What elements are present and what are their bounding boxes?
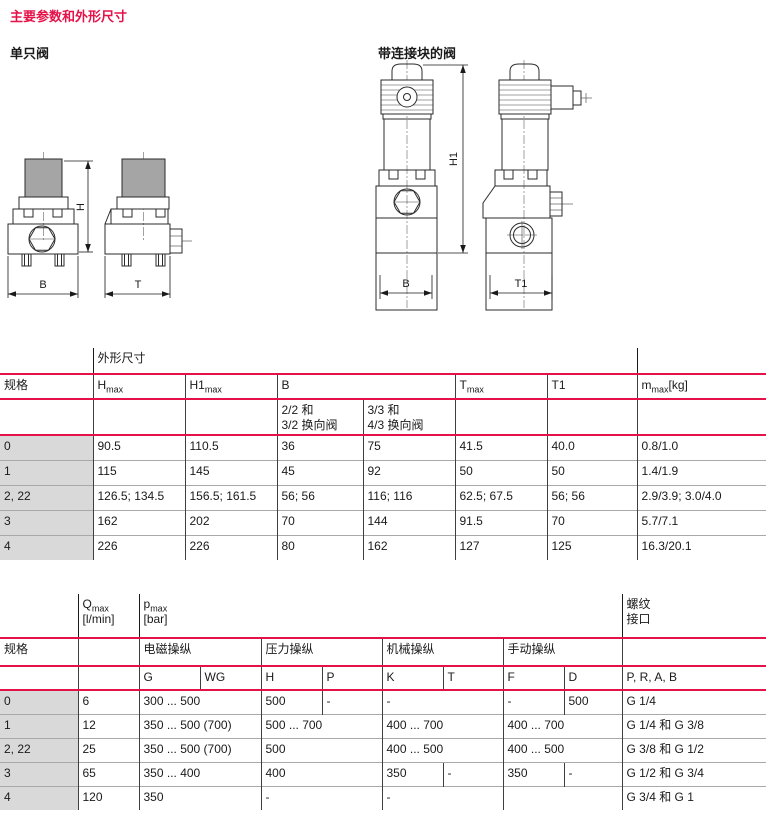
table-cell: 40.0 bbox=[547, 435, 637, 460]
table-cell: 226 bbox=[93, 535, 185, 560]
table-cell bbox=[0, 399, 93, 435]
table-cell: 65 bbox=[78, 762, 139, 786]
table-cell: 400 ... 700 bbox=[503, 714, 622, 738]
table-cell: 56; 56 bbox=[277, 485, 363, 510]
table-cell bbox=[78, 666, 139, 690]
table-cell: 500 ... 700 bbox=[261, 714, 382, 738]
table-cell: - bbox=[261, 786, 382, 810]
table-cell: 400 ... 500 bbox=[382, 738, 503, 762]
table-cell bbox=[622, 638, 766, 666]
header-spec: 规格 bbox=[0, 374, 93, 399]
header-hmax: Hmax bbox=[93, 374, 185, 399]
table-cell: - bbox=[382, 690, 503, 714]
table-cell: 350 ... 500 (700) bbox=[139, 738, 261, 762]
header-pressure: 压力操纵 bbox=[261, 638, 382, 666]
table-cell: 500 bbox=[564, 690, 622, 714]
table-cell: - bbox=[322, 690, 382, 714]
table-row: G WG H P K T F D P, R, A, B bbox=[0, 666, 766, 690]
table-cell: 125 bbox=[547, 535, 637, 560]
table-cell: 145 bbox=[185, 460, 277, 485]
header-pmax: pmax [bar] bbox=[139, 594, 622, 638]
table-cell: 156.5; 161.5 bbox=[185, 485, 277, 510]
table-cell: 202 bbox=[185, 510, 277, 535]
table-cell: 25 bbox=[78, 738, 139, 762]
table-cell: 400 ... 500 bbox=[503, 738, 622, 762]
table-row: 规格 Hmax H1max B Tmax T1 mmax[kg] bbox=[0, 374, 766, 399]
table-cell bbox=[503, 786, 622, 810]
spec-cell: 1 bbox=[0, 714, 78, 738]
table-cell: 92 bbox=[363, 460, 455, 485]
table-cell bbox=[637, 399, 766, 435]
header-g: G bbox=[139, 666, 200, 690]
header-wg: WG bbox=[200, 666, 261, 690]
table-cell bbox=[0, 348, 93, 374]
table-cell bbox=[0, 666, 78, 690]
header-group-dimensions: 外形尺寸 bbox=[93, 348, 637, 374]
table-cell: G 3/4 和 G 1 bbox=[622, 786, 766, 810]
header-d: D bbox=[564, 666, 622, 690]
block-valve-drawing: B H1 bbox=[360, 55, 650, 315]
dim-label-t: T bbox=[135, 279, 142, 291]
table-cell: 6 bbox=[78, 690, 139, 714]
header-manual: 手动操纵 bbox=[503, 638, 622, 666]
table-cell: 62.5; 67.5 bbox=[455, 485, 547, 510]
table-row: 1 115 145 45 92 50 50 1.4/1.9 bbox=[0, 460, 766, 485]
dim-label-b2: B bbox=[402, 278, 409, 290]
table-cell bbox=[455, 399, 547, 435]
table-cell bbox=[637, 348, 766, 374]
table-cell: 1.4/1.9 bbox=[637, 460, 766, 485]
table-cell: G 1/2 和 G 3/4 bbox=[622, 762, 766, 786]
header-p: P bbox=[322, 666, 382, 690]
table-cell: 116; 116 bbox=[363, 485, 455, 510]
table-cell: 16.3/20.1 bbox=[637, 535, 766, 560]
spec-cell: 0 bbox=[0, 435, 93, 460]
table-row: 外形尺寸 bbox=[0, 348, 766, 374]
table-cell: 5.7/7.1 bbox=[637, 510, 766, 535]
table-cell bbox=[547, 399, 637, 435]
table-cell: 350 bbox=[382, 762, 443, 786]
table-row: 0 6 300 ... 500 500 - - - 500 G 1/4 bbox=[0, 690, 766, 714]
header-t1: T1 bbox=[547, 374, 637, 399]
header-b: B bbox=[277, 374, 455, 399]
spec-cell: 4 bbox=[0, 535, 93, 560]
table-row: 4 120 350 - - G 3/4 和 G 1 bbox=[0, 786, 766, 810]
datasheet-page: 主要参数和外形尺寸 单只阀 带连接块的阀 H B bbox=[0, 0, 766, 814]
header-spec: 规格 bbox=[0, 638, 78, 666]
table-cell: - bbox=[382, 786, 503, 810]
table-cell: 350 ... 400 bbox=[139, 762, 261, 786]
dimensions-table: 外形尺寸 规格 Hmax H1max B Tmax T1 mmax[kg] 2/… bbox=[0, 348, 766, 560]
table-cell: 126.5; 134.5 bbox=[93, 485, 185, 510]
dim-label-b: B bbox=[39, 279, 46, 291]
header-solenoid: 电磁操纵 bbox=[139, 638, 261, 666]
spec-cell: 1 bbox=[0, 460, 93, 485]
header-t: T bbox=[443, 666, 503, 690]
spec-cell: 2, 22 bbox=[0, 738, 78, 762]
header-tmax: Tmax bbox=[455, 374, 547, 399]
table-row: 2, 22 126.5; 134.5 156.5; 161.5 56; 56 1… bbox=[0, 485, 766, 510]
table-row: 4 226 226 80 162 127 125 16.3/20.1 bbox=[0, 535, 766, 560]
spec-cell: 0 bbox=[0, 690, 78, 714]
table-row: 1 12 350 ... 500 (700) 500 ... 700 400 .… bbox=[0, 714, 766, 738]
header-mechanical: 机械操纵 bbox=[382, 638, 503, 666]
table-cell: 41.5 bbox=[455, 435, 547, 460]
table-cell: - bbox=[443, 762, 503, 786]
header-b-sub2: 3/3 和4/3 换向阀 bbox=[363, 399, 455, 435]
spec-cell: 4 bbox=[0, 786, 78, 810]
table-cell bbox=[93, 399, 185, 435]
table-row: 规格 电磁操纵 压力操纵 机械操纵 手动操纵 bbox=[0, 638, 766, 666]
dim-label-h1: H1 bbox=[448, 152, 460, 166]
table-cell: G 3/8 和 G 1/2 bbox=[622, 738, 766, 762]
table-cell: 120 bbox=[78, 786, 139, 810]
header-b-sub1: 2/2 和3/2 换向阀 bbox=[277, 399, 363, 435]
table-cell: 350 bbox=[139, 786, 261, 810]
header-ports: P, R, A, B bbox=[622, 666, 766, 690]
table-cell bbox=[78, 638, 139, 666]
table-cell: 115 bbox=[93, 460, 185, 485]
table-cell: 80 bbox=[277, 535, 363, 560]
table-cell bbox=[185, 399, 277, 435]
spec-cell: 3 bbox=[0, 510, 93, 535]
spec-cell: 3 bbox=[0, 762, 78, 786]
dim-label-h: H bbox=[75, 203, 87, 211]
table-row: 3 162 202 70 144 91.5 70 5.7/7.1 bbox=[0, 510, 766, 535]
single-valve-label: 单只阀 bbox=[10, 43, 49, 62]
table-row: 3 65 350 ... 400 400 350 - 350 - G 1/2 和… bbox=[0, 762, 766, 786]
table-cell: 500 bbox=[261, 690, 322, 714]
dim-label-t1: T1 bbox=[515, 278, 528, 290]
table-row: Qmax [l/min] pmax [bar] 螺纹接口 bbox=[0, 594, 766, 638]
header-thread: 螺纹接口 bbox=[622, 594, 766, 638]
table-cell: 400 bbox=[261, 762, 382, 786]
table-cell: 350 ... 500 (700) bbox=[139, 714, 261, 738]
header-k: K bbox=[382, 666, 443, 690]
table-cell: 12 bbox=[78, 714, 139, 738]
table-row: 2, 22 25 350 ... 500 (700) 500 400 ... 5… bbox=[0, 738, 766, 762]
header-mmax: mmax[kg] bbox=[637, 374, 766, 399]
table-cell: 50 bbox=[455, 460, 547, 485]
table-cell: - bbox=[564, 762, 622, 786]
table-cell: 0.8/1.0 bbox=[637, 435, 766, 460]
table-cell: 70 bbox=[277, 510, 363, 535]
page-title: 主要参数和外形尺寸 bbox=[10, 6, 127, 25]
table-cell: G 1/4 和 G 3/8 bbox=[622, 714, 766, 738]
table-row: 2/2 和3/2 换向阀 3/3 和4/3 换向阀 bbox=[0, 399, 766, 435]
header-f: F bbox=[503, 666, 564, 690]
performance-table: Qmax [l/min] pmax [bar] 螺纹接口 规格 电磁操纵 压力操… bbox=[0, 594, 766, 810]
table-cell: 300 ... 500 bbox=[139, 690, 261, 714]
spec-cell: 2, 22 bbox=[0, 485, 93, 510]
table-cell: 56; 56 bbox=[547, 485, 637, 510]
table-row: 0 90.5 110.5 36 75 41.5 40.0 0.8/1.0 bbox=[0, 435, 766, 460]
table-cell: 91.5 bbox=[455, 510, 547, 535]
table-cell: 2.9/3.9; 3.0/4.0 bbox=[637, 485, 766, 510]
table-cell: 110.5 bbox=[185, 435, 277, 460]
single-valve-drawing: H B T bbox=[0, 140, 200, 310]
table-cell: 127 bbox=[455, 535, 547, 560]
table-cell: 162 bbox=[93, 510, 185, 535]
table-cell: 500 bbox=[261, 738, 382, 762]
table-cell: 144 bbox=[363, 510, 455, 535]
table-cell: 75 bbox=[363, 435, 455, 460]
table-cell: G 1/4 bbox=[622, 690, 766, 714]
header-qmax: Qmax [l/min] bbox=[78, 594, 139, 638]
table-cell: - bbox=[503, 690, 564, 714]
table-cell bbox=[0, 594, 78, 638]
table-cell: 50 bbox=[547, 460, 637, 485]
header-h: H bbox=[261, 666, 322, 690]
header-h1max: H1max bbox=[185, 374, 277, 399]
table-cell: 90.5 bbox=[93, 435, 185, 460]
table-cell: 36 bbox=[277, 435, 363, 460]
table-cell: 400 ... 700 bbox=[382, 714, 503, 738]
table-cell: 45 bbox=[277, 460, 363, 485]
table-cell: 226 bbox=[185, 535, 277, 560]
table-cell: 162 bbox=[363, 535, 455, 560]
table-cell: 350 bbox=[503, 762, 564, 786]
table-cell: 70 bbox=[547, 510, 637, 535]
